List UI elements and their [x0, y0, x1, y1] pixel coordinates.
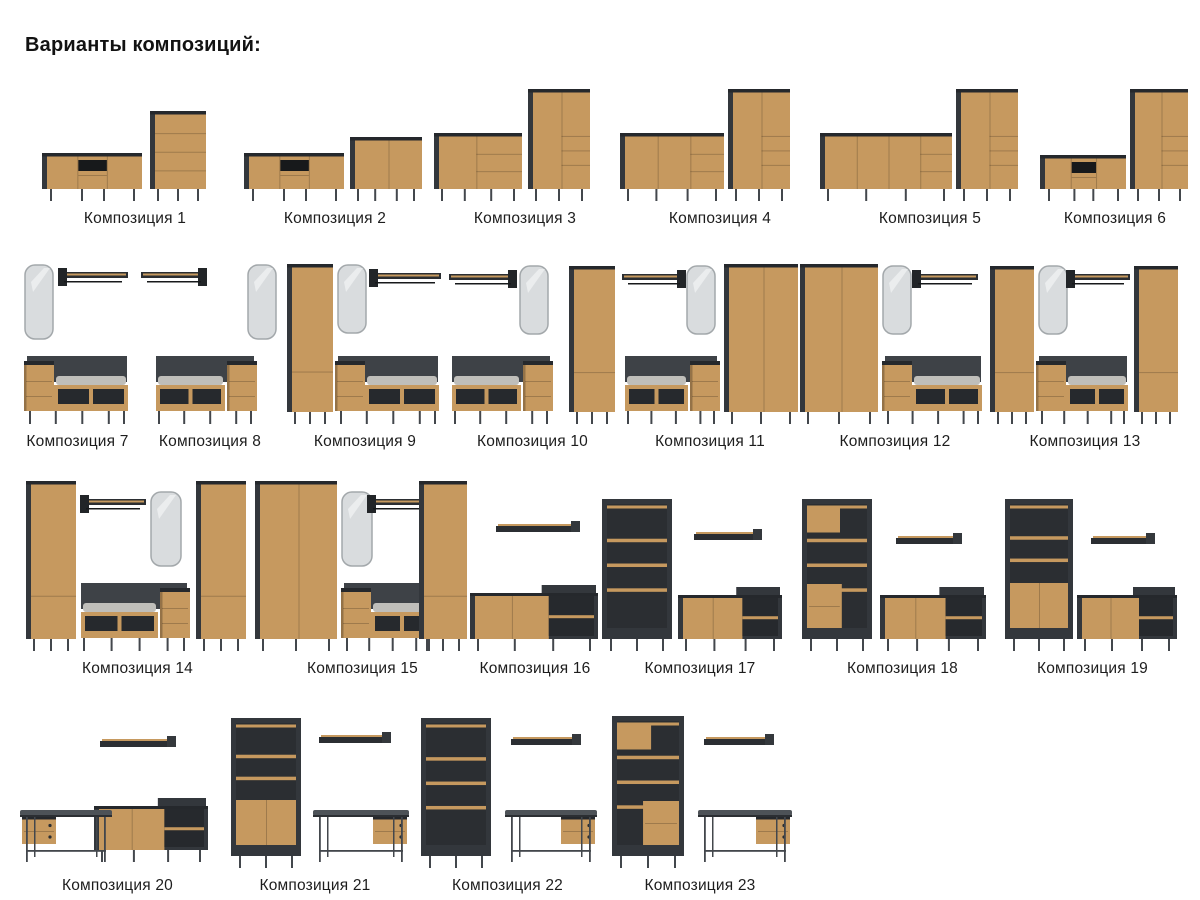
furniture-mirror-illustration: [150, 491, 182, 567]
composition-label: Композиция 14: [20, 660, 255, 678]
furniture-bookcase-illustration: [421, 718, 491, 868]
composition-image: [20, 262, 135, 424]
composition-card[interactable]: Композиция 23: [600, 712, 800, 895]
compositions-row-1: Композиция 1Композиция 2Композиция 3Комп…: [0, 83, 1200, 228]
composition-card[interactable]: Композиция 16: [470, 479, 600, 678]
composition-label: Композиция 2: [240, 210, 430, 228]
furniture-wallshelf-illustration: [496, 521, 580, 539]
composition-image: [255, 479, 470, 651]
furniture-wallshelf-illustration: [319, 732, 391, 750]
furniture-tvstand-illustration: [1040, 155, 1126, 201]
composition-image: [620, 83, 820, 201]
composition-card[interactable]: Композиция 15: [255, 479, 470, 678]
furniture-wardrobe-illustration: [800, 264, 878, 424]
composition-label: Композиция 20: [20, 877, 215, 895]
furniture-wardrobe-illustration: [287, 264, 333, 424]
composition-card[interactable]: Композиция 9: [285, 262, 445, 451]
composition-label: Композиция 6: [1040, 210, 1190, 228]
furniture-mirror-illustration: [337, 264, 367, 334]
furniture-hanger-illustration: [622, 270, 686, 290]
composition-label: Композиция 21: [215, 877, 415, 895]
furniture-hanger-illustration: [1066, 270, 1130, 290]
furniture-hanger-illustration: [449, 270, 517, 290]
furniture-sideboard-illustration: [820, 133, 952, 201]
catalog-page: Варианты композиций: Композиция 1Компози…: [0, 0, 1200, 900]
furniture-mirror-illustration: [882, 265, 912, 335]
composition-label: Композиция 22: [415, 877, 600, 895]
furniture-desk-illustration: [20, 810, 112, 868]
furniture-sideboard-illustration: [620, 133, 724, 201]
composition-card[interactable]: Композиция 21: [215, 712, 415, 895]
composition-label: Композиция 19: [1005, 660, 1180, 678]
composition-label: Композиция 15: [255, 660, 470, 678]
furniture-tvstand-illustration: [244, 153, 344, 201]
furniture-desk-illustration: [698, 810, 792, 868]
composition-label: Композиция 18: [800, 660, 1005, 678]
furniture-mirror-illustration: [686, 265, 716, 335]
composition-card[interactable]: Композиция 14: [20, 479, 255, 678]
composition-image: [20, 712, 215, 868]
furniture-wardrobe-illustration: [26, 481, 76, 651]
furniture-bench-illustration: [1036, 356, 1130, 424]
composition-label: Композиция 13: [990, 433, 1180, 451]
furniture-wardrobe-illustration: [724, 264, 798, 424]
composition-image: [800, 262, 990, 424]
composition-image: [285, 262, 445, 424]
furniture-wallshelf-illustration: [1091, 533, 1155, 551]
furniture-bench-illustration: [882, 356, 984, 424]
composition-label: Композиция 9: [285, 433, 445, 451]
furniture-bench-illustration: [622, 356, 720, 424]
composition-image: [415, 712, 600, 868]
furniture-wardrobe-illustration: [990, 266, 1034, 424]
composition-image: [990, 262, 1180, 424]
furniture-dresser-illustration: [150, 111, 206, 201]
composition-image: [240, 83, 430, 201]
furniture-tallcab-illustration: [728, 89, 790, 201]
furniture-bookcase-illustration: [612, 716, 684, 868]
furniture-wardrobe-illustration: [419, 481, 467, 651]
composition-card[interactable]: Композиция 8: [135, 262, 285, 451]
furniture-wallshelf-illustration: [896, 533, 962, 551]
composition-card[interactable]: Композиция 3: [430, 83, 620, 228]
furniture-wallshelf-illustration: [694, 529, 762, 547]
composition-card[interactable]: Композиция 2: [240, 83, 430, 228]
composition-label: Композиция 3: [430, 210, 620, 228]
composition-card[interactable]: Композиция 20: [20, 712, 215, 895]
furniture-mirror-illustration: [1038, 265, 1068, 335]
composition-card[interactable]: Композиция 13: [990, 262, 1180, 451]
furniture-mirror-illustration: [247, 264, 277, 340]
composition-label: Композиция 23: [600, 877, 800, 895]
composition-card[interactable]: Композиция 22: [415, 712, 600, 895]
composition-image: [135, 262, 285, 424]
composition-label: Композиция 5: [820, 210, 1040, 228]
composition-card[interactable]: Композиция 1: [30, 83, 240, 228]
furniture-bench-illustration: [24, 356, 130, 424]
furniture-wallshelf-illustration: [704, 734, 774, 752]
furniture-bookcase-illustration: [1005, 499, 1073, 651]
furniture-tvstand-illustration: [42, 153, 142, 201]
furniture-wardrobe-illustration: [569, 266, 615, 424]
furniture-bookcase-illustration: [231, 718, 301, 868]
furniture-bench-illustration: [153, 356, 257, 424]
furniture-mirror-illustration: [519, 265, 549, 335]
furniture-bench-illustration: [78, 583, 190, 651]
composition-card[interactable]: Композиция 5: [820, 83, 1040, 228]
page-title: Варианты композиций:: [25, 34, 1200, 57]
furniture-bench-illustration: [449, 356, 553, 424]
composition-image: [470, 479, 600, 651]
furniture-hanger-illustration: [80, 495, 146, 515]
furniture-hanger-illustration: [58, 268, 128, 288]
furniture-tallcab-illustration: [528, 89, 590, 201]
composition-card[interactable]: Композиция 7: [20, 262, 135, 451]
furniture-bookcase-illustration: [602, 499, 672, 651]
furniture-wardrobe-illustration: [1134, 266, 1178, 424]
composition-label: Композиция 10: [445, 433, 620, 451]
furniture-hanger-illustration: [912, 270, 978, 290]
composition-image: [800, 479, 1005, 651]
composition-label: Композиция 11: [620, 433, 800, 451]
compositions-row-2: Композиция 7Композиция 8Композиция 9Комп…: [0, 262, 1200, 451]
furniture-sbniche-illustration: [1077, 587, 1177, 651]
furniture-sbniche-illustration: [678, 587, 782, 651]
composition-card[interactable]: Композиция 19: [1005, 479, 1180, 678]
furniture-desk-illustration: [313, 810, 409, 868]
composition-image: [1040, 83, 1190, 201]
furniture-wardrobe-illustration: [255, 481, 337, 651]
composition-card[interactable]: Композиция 17: [600, 479, 800, 678]
composition-image: [600, 479, 800, 651]
composition-image: [1005, 479, 1180, 651]
composition-image: [430, 83, 620, 201]
composition-label: Композиция 1: [30, 210, 240, 228]
furniture-mirror-illustration: [24, 264, 54, 340]
furniture-sbniche-illustration: [470, 585, 598, 651]
furniture-wallshelf-illustration: [511, 734, 581, 752]
furniture-sideboard-illustration: [434, 133, 522, 201]
furniture-hanger-illustration: [369, 269, 441, 289]
composition-label: Композиция 8: [135, 433, 285, 451]
composition-card[interactable]: Композиция 18: [800, 479, 1005, 678]
composition-label: Композиция 4: [620, 210, 820, 228]
furniture-bench-illustration: [335, 356, 441, 424]
furniture-hanger-illustration: [141, 268, 207, 288]
composition-card[interactable]: Композиция 12: [800, 262, 990, 451]
composition-label: Композиция 12: [800, 433, 990, 451]
furniture-tallcab-illustration: [1130, 89, 1188, 201]
furniture-wallshelf-illustration: [100, 736, 176, 754]
furniture-sideboard-illustration: [350, 137, 422, 201]
composition-label: Композиция 7: [20, 433, 135, 451]
compositions-row-4: Композиция 20Композиция 21Композиция 22К…: [0, 712, 1200, 895]
composition-image: [820, 83, 1040, 201]
composition-image: [20, 479, 255, 651]
furniture-tallcab-illustration: [956, 89, 1018, 201]
composition-card[interactable]: Композиция 11: [620, 262, 800, 451]
compositions-row-3: Композиция 14Композиция 15Композиция 16К…: [0, 479, 1200, 678]
composition-image: [620, 262, 800, 424]
composition-image: [30, 83, 240, 201]
composition-card[interactable]: Композиция 4: [620, 83, 820, 228]
furniture-desk-illustration: [505, 810, 597, 868]
composition-label: Композиция 16: [470, 660, 600, 678]
composition-image: [215, 712, 415, 868]
composition-label: Композиция 17: [600, 660, 800, 678]
furniture-wardrobe-illustration: [196, 481, 246, 651]
compositions-grid: Композиция 1Композиция 2Композиция 3Комп…: [0, 83, 1200, 895]
furniture-bookcase-illustration: [802, 499, 872, 651]
composition-image: [600, 712, 800, 868]
composition-card[interactable]: Композиция 6: [1040, 83, 1190, 228]
furniture-sbniche-illustration: [880, 587, 986, 651]
composition-card[interactable]: Композиция 10: [445, 262, 620, 451]
composition-image: [445, 262, 620, 424]
